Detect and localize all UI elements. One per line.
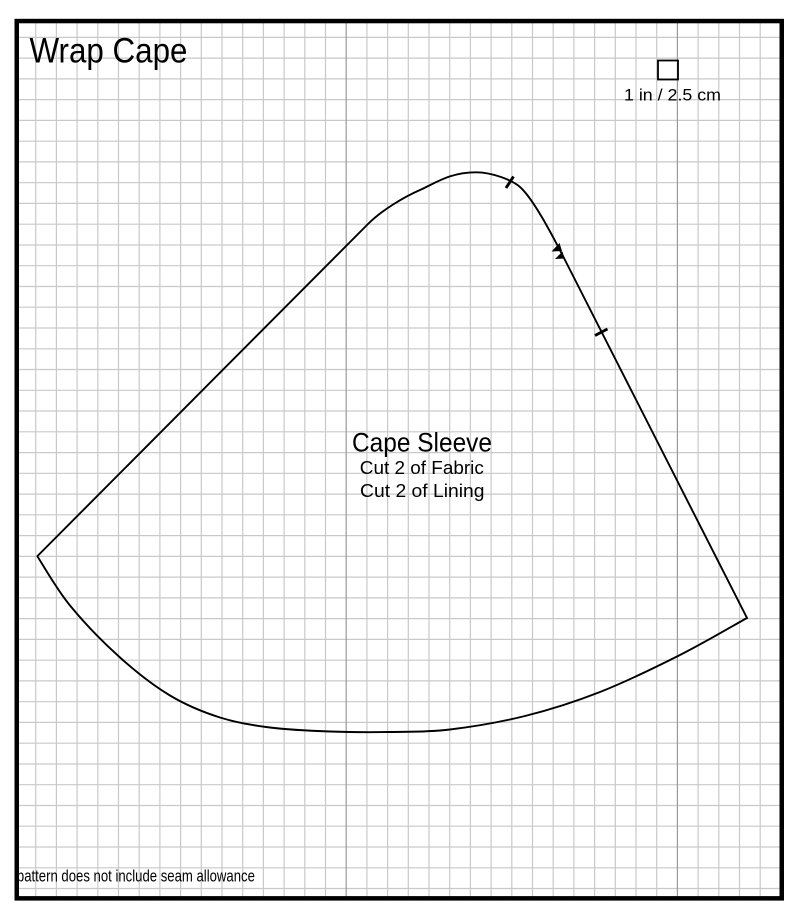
svg-text:Wrap Cape: Wrap Cape [30,31,188,70]
svg-text:Cut 2 of Fabric: Cut 2 of Fabric [360,457,484,478]
svg-text:1 in / 2.5 cm: 1 in / 2.5 cm [624,87,721,105]
svg-text:pattern does not include seam: pattern does not include seam allowance [17,867,255,886]
svg-text:Cut 2 of Lining: Cut 2 of Lining [360,480,485,501]
svg-text:Cape Sleeve: Cape Sleeve [352,427,492,457]
